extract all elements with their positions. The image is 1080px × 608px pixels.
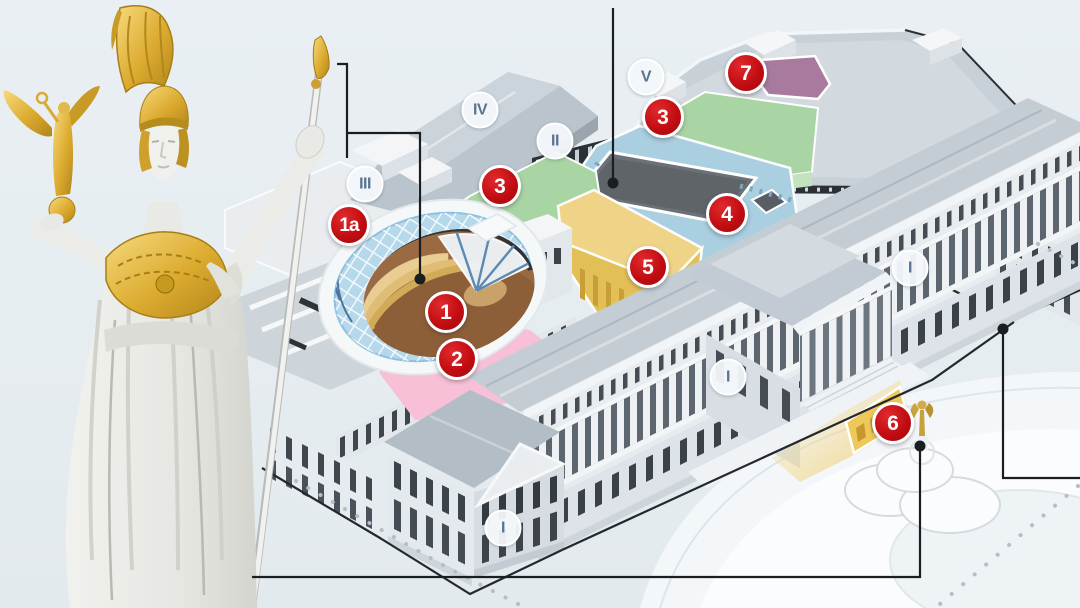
zone-roof-terrace-7 bbox=[755, 56, 830, 99]
gold-aegis bbox=[106, 232, 228, 318]
spearhead bbox=[313, 36, 329, 79]
infographic-stage: 1a12334567IIIIIIIIIVV bbox=[0, 0, 1080, 608]
nike-statuette bbox=[4, 86, 100, 223]
statue-head bbox=[111, 6, 189, 180]
scene-illustration bbox=[0, 0, 1080, 608]
